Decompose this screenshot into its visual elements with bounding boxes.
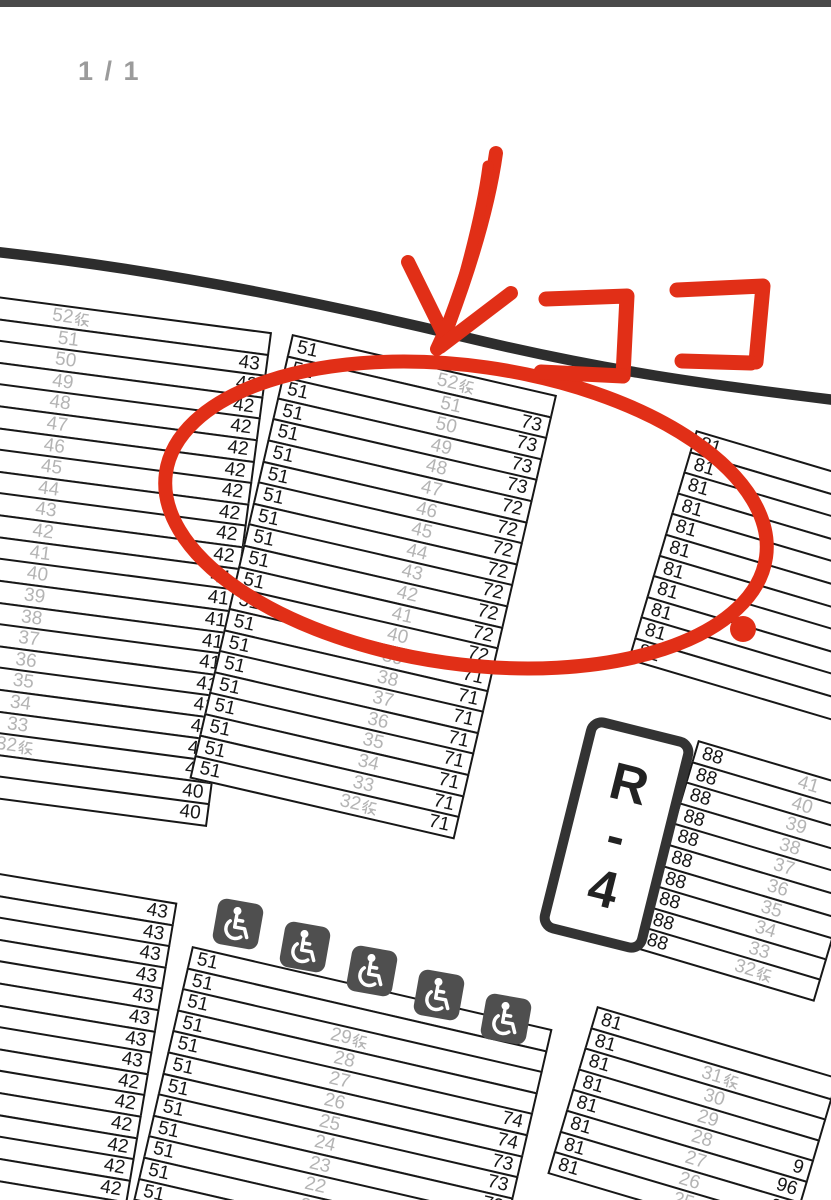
page-indicator: 1 / 1 — [78, 56, 141, 87]
wheelchair-icon — [278, 920, 331, 973]
r4-block-label: R-4 — [572, 750, 662, 920]
seating-chart-page: 1 / 1 52 5143504349424842474246424542444… — [0, 0, 831, 1200]
koko-handwritten-text — [541, 286, 763, 376]
dan-kanji-glyph — [17, 739, 35, 757]
dan-kanji-glyph — [721, 1071, 741, 1091]
seat-section-right-81: 8181818181818181818181 — [628, 430, 831, 721]
seat-section-bottom-right: 818131 81308129812898127968126968125 — [547, 1006, 831, 1200]
seat-section-bottom-middle: 51515129 5128512774512674512573512473512… — [128, 946, 552, 1200]
wheelchair-icon — [479, 992, 532, 1045]
top-bar — [0, 0, 831, 7]
dan-kanji-glyph — [350, 1032, 369, 1051]
wheelchair-icon — [345, 944, 398, 997]
wheelchair-icon — [211, 897, 264, 950]
dan-kanji-glyph — [754, 965, 774, 985]
red-down-arrow — [408, 153, 511, 349]
wheelchair-icon — [412, 968, 465, 1021]
dan-kanji-glyph — [73, 310, 91, 328]
dan-kanji-glyph — [457, 377, 476, 396]
